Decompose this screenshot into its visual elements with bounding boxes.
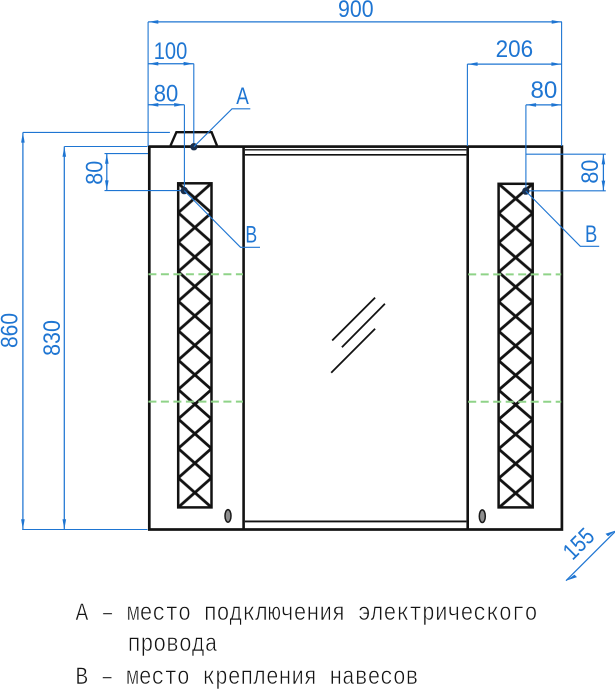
svg-text:B: B [585,222,597,248]
svg-text:900: 900 [338,0,374,23]
svg-text:80: 80 [578,160,604,184]
svg-text:80: 80 [82,161,108,185]
svg-text:80: 80 [154,82,179,108]
svg-text:830: 830 [40,320,66,356]
svg-text:860: 860 [0,313,24,348]
svg-text:80: 80 [531,78,558,104]
svg-text:155: 155 [558,524,600,566]
svg-text:В – место крепления навесов: В – место крепления навесов [75,663,418,690]
svg-text:206: 206 [496,37,534,63]
svg-text:А – место подключения электрич: А – место подключения электрического [76,599,538,628]
svg-text:A: A [236,84,249,110]
svg-text:100: 100 [154,39,188,65]
svg-text:провода: провода [128,630,218,659]
svg-text:B: B [245,223,257,249]
